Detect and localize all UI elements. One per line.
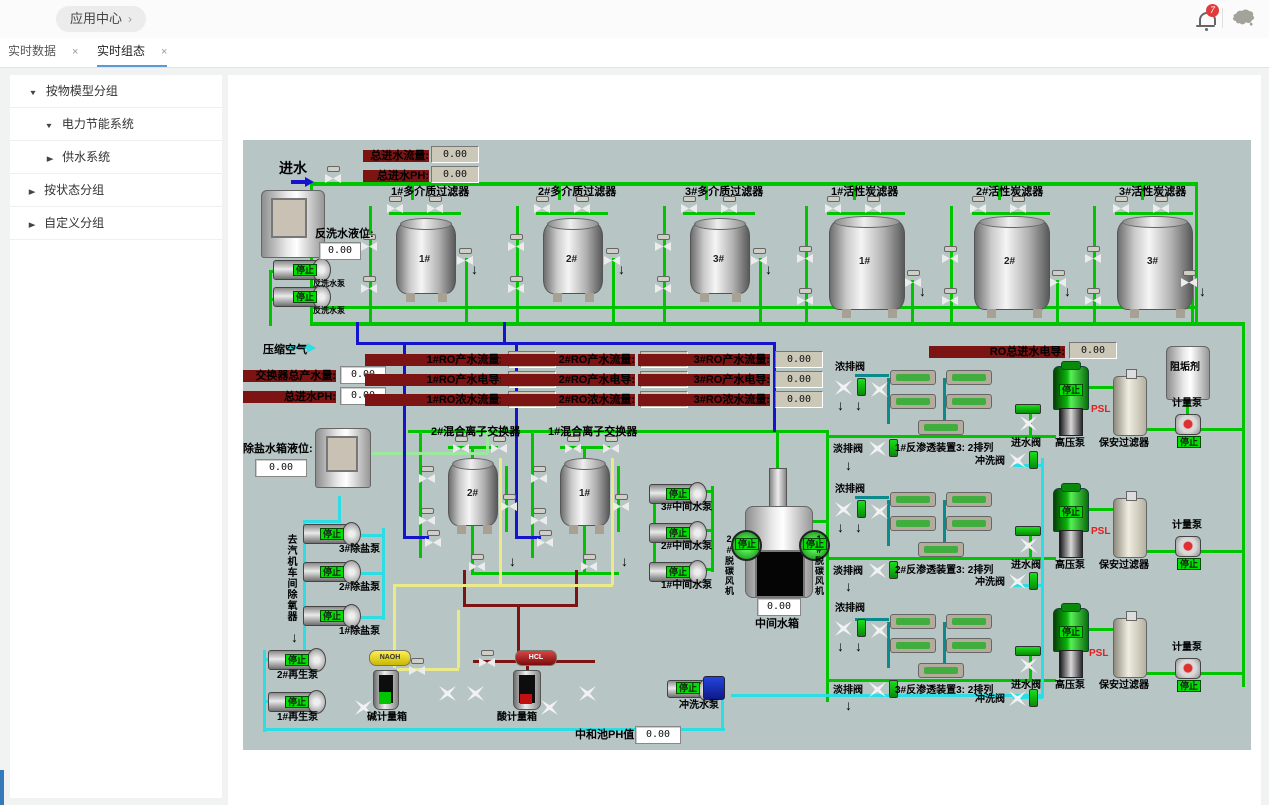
notification-bell-button[interactable]: 7 (1196, 8, 1218, 30)
status-stop-badge[interactable]: 停止 (666, 527, 690, 539)
flush-pump-label: 冲洗水泵 (679, 700, 719, 712)
breadcrumb[interactable]: 应用中心› (56, 6, 146, 32)
flush-pump-head (703, 676, 725, 700)
valve-indicator (857, 619, 866, 637)
pipe-segment (711, 486, 714, 572)
valve-icon[interactable] (865, 196, 881, 214)
valve-icon[interactable] (501, 494, 517, 512)
inlet-arrow-icon (305, 177, 314, 187)
air-arrow-icon (307, 343, 316, 353)
conc-valve-label: 浓排阀 (835, 362, 865, 374)
pipe-segment (465, 258, 468, 324)
pipe-segment (503, 322, 506, 345)
total-ph-value[interactable]: 0.00 (431, 166, 479, 183)
status-stop-badge[interactable]: 停止 (666, 566, 690, 578)
valve-icon[interactable] (1113, 196, 1129, 214)
pipe-segment (1013, 464, 1043, 467)
valve-icon[interactable] (469, 554, 485, 572)
hp-pump-label: 高压泵 (1055, 680, 1085, 692)
pipe-segment (471, 572, 619, 575)
drain-valve-icon[interactable] (871, 623, 888, 638)
status-stop-badge[interactable]: 停止 (320, 566, 344, 578)
pipe-segment (1195, 182, 1198, 324)
conc-valve-label: 浓排阀 (835, 603, 865, 615)
pipe-segment (1041, 458, 1044, 698)
ro-membrane (890, 492, 936, 507)
valve-icon[interactable] (574, 196, 590, 214)
naoh-label: NAOH (380, 654, 401, 661)
valve-icon[interactable] (603, 436, 619, 454)
filter-label: 3#多介质过滤器 (685, 186, 763, 198)
alkali-level (379, 692, 391, 704)
valve-icon[interactable] (531, 466, 547, 484)
chem-valve-icon[interactable] (541, 700, 558, 715)
exchanger-label: 1#混合离子交换器 (548, 426, 637, 438)
flow-down-arrow-icon: ↓ (855, 520, 862, 534)
ro-membrane (918, 663, 964, 678)
pipe-segment (310, 322, 1245, 326)
fresh-valve-label: 淡排阀 (833, 444, 863, 456)
total-flow-value[interactable]: 0.00 (431, 146, 479, 163)
valve-icon[interactable] (721, 196, 737, 214)
valve-icon[interactable] (419, 466, 435, 484)
pipe-segment (1242, 322, 1245, 687)
scada-canvas: 1# 2# 3# 1# 2# 3# 2# 1# 阻垢剂 (243, 140, 1251, 750)
inlet-ph2-label: 总进水PH: (243, 391, 336, 403)
pipe-segment (393, 584, 613, 587)
compressed-air-label: 压缩空气 (263, 344, 307, 356)
mid-pump-label: 2#中间水泵 (661, 541, 712, 553)
flow-down-arrow-icon: ↓ (509, 554, 516, 568)
status-stop-badge[interactable]: 停止 (666, 488, 690, 500)
tank-window (326, 436, 358, 472)
tank-number: 1# (579, 488, 590, 499)
mid-tank-screen (755, 550, 805, 598)
flow-down-arrow-icon: ↓ (837, 520, 844, 534)
notification-badge: 7 (1206, 4, 1219, 17)
status-stop-badge[interactable]: 停止 (1177, 680, 1201, 692)
pipe-segment (1013, 584, 1043, 587)
tab-label: 实时组态 (97, 44, 145, 58)
scroll-indicator (0, 770, 4, 805)
ro3-cond-value[interactable]: 0.00 (775, 371, 823, 388)
valve-indicator (857, 378, 866, 396)
pipe-segment (759, 258, 762, 324)
pipe-segment (303, 520, 341, 523)
flow-down-arrow-icon: ↓ (1199, 284, 1206, 298)
to-deaerator-label: 去汽机车间除氧器 (285, 534, 296, 622)
ro-membrane (946, 370, 992, 385)
ro-membrane (890, 614, 936, 629)
tab-label: 实时数据 (8, 44, 56, 58)
flow-down-arrow-icon: ↓ (845, 458, 852, 472)
ro1-flow-label: 1#RO产水流量: (365, 354, 503, 366)
status-stop-badge[interactable]: 停止 (320, 528, 344, 540)
inlet-label: 进水 (279, 162, 307, 174)
backwash-level-label: 反洗水液位: (315, 228, 374, 240)
valve-icon[interactable] (825, 196, 841, 214)
status-stop-badge[interactable]: 停止 (803, 538, 827, 550)
flow-down-arrow-icon: ↓ (919, 284, 926, 298)
flow-down-arrow-icon: ↓ (837, 639, 844, 653)
valve-icon[interactable] (419, 508, 435, 526)
tree-item-label: 按状态分组 (44, 183, 104, 197)
pipe-segment (457, 610, 460, 668)
metering-pump[interactable] (1175, 414, 1201, 435)
breadcrumb-label: 应用中心 (70, 11, 122, 26)
valve-icon[interactable] (1010, 196, 1026, 214)
fan-label: 2#脱碳风机 (723, 534, 734, 596)
main-panel: 1# 2# 3# 1# 2# 3# 2# 1# 阻垢剂 (228, 75, 1261, 805)
filter-label: 1#活性炭滤器 (831, 186, 898, 198)
ro3-conc-value[interactable]: 0.00 (775, 391, 823, 408)
tree-expand-icon[interactable]: ▶ (47, 145, 54, 174)
pipe-segment (291, 180, 305, 184)
guard-filter (1113, 498, 1147, 558)
valve-icon[interactable] (531, 508, 547, 526)
acid-level (520, 694, 532, 704)
total-flow-label: 总进水流量: (363, 150, 429, 162)
tree-expand-icon[interactable]: ▼ (29, 79, 38, 108)
ro2-conc-label: 2#RO浓水流量: (501, 394, 635, 406)
chem-valve-icon[interactable] (579, 686, 596, 701)
tank-number: 3# (1147, 256, 1158, 267)
status-stop-badge[interactable]: 停止 (320, 610, 344, 622)
guard-filter-label: 保安过滤器 (1099, 560, 1149, 572)
pipe-segment (310, 306, 1198, 309)
status-stop-badge[interactable]: 停止 (1059, 626, 1083, 638)
psl-alarm-label: PSL (1091, 404, 1110, 416)
ro-membrane (946, 638, 992, 653)
status-stop-badge[interactable]: 停止 (1177, 436, 1201, 448)
status-stop-badge[interactable]: 停止 (293, 264, 317, 276)
meter-pump-label: 计量泵 (1172, 642, 1202, 654)
tank-number: 3# (713, 254, 724, 265)
psl-alarm-label: PSL (1091, 526, 1110, 538)
valve-icon[interactable] (613, 494, 629, 512)
pump-base (1059, 408, 1083, 436)
valve-icon[interactable] (534, 196, 550, 214)
valve-icon[interactable] (508, 276, 524, 294)
ro1-cond-label: 1#RO产水电导: (365, 374, 503, 386)
valve-icon[interactable] (387, 196, 403, 214)
guard-filter-label: 保安过滤器 (1099, 680, 1149, 692)
pipe-segment (611, 458, 614, 585)
drain-valve-icon[interactable] (871, 504, 888, 519)
pipe-segment (855, 496, 889, 499)
flow-down-arrow-icon: ↓ (471, 262, 478, 276)
flow-down-arrow-icon: ↓ (291, 630, 298, 644)
pipe-segment (575, 570, 578, 606)
pipe-segment (855, 374, 889, 377)
valve-icon[interactable] (1181, 270, 1197, 288)
hcl-tank: HCL (515, 650, 557, 666)
tab-close-icon[interactable]: × (161, 46, 167, 58)
tank-number: 2# (566, 254, 577, 265)
sidebar-item-custom-group[interactable]: ▶自定义分组 (10, 207, 222, 240)
meter-pump-label: 计量泵 (1172, 520, 1202, 532)
valve-icon[interactable] (681, 196, 697, 214)
valve-icon[interactable] (491, 436, 507, 454)
tank-number: 1# (859, 256, 870, 267)
filter-label: 2#活性炭滤器 (976, 186, 1043, 198)
valve-icon[interactable] (655, 276, 671, 294)
tree-expand-icon[interactable]: ▶ (29, 211, 36, 240)
pump-base (1059, 530, 1083, 558)
guard-filter-label: 保安过滤器 (1099, 438, 1149, 450)
flow-down-arrow-icon: ↓ (845, 698, 852, 712)
pipe-segment (403, 342, 406, 539)
valve-icon[interactable] (325, 166, 341, 184)
ro3-flow-label: 3#RO产水流量: (638, 354, 770, 366)
drain-valve-icon[interactable] (835, 621, 852, 636)
filter-label: 2#多介质过滤器 (538, 186, 616, 198)
tree-item-label: 自定义分组 (44, 216, 104, 230)
fresh-valve-label: 淡排阀 (833, 685, 863, 697)
status-stop-badge[interactable]: 停止 (293, 291, 317, 303)
valve-indicator (1029, 572, 1038, 590)
pump-base (1059, 650, 1083, 678)
inlet-valve-label: 进水阀 (1011, 438, 1041, 450)
fresh-drain-valve-icon[interactable] (869, 563, 886, 578)
acid-tank-label: 酸计量箱 (497, 712, 537, 724)
psl-alarm-label: PSL (1089, 648, 1108, 660)
guard-filter (1113, 376, 1147, 436)
flow-down-arrow-icon: ↓ (855, 398, 862, 412)
pipe-segment (382, 528, 385, 620)
ro-unit-label: 1#反渗透装置3: 2排列 (895, 443, 993, 455)
status-stop-badge[interactable]: 停止 (735, 538, 759, 550)
valve-icon[interactable] (409, 658, 425, 676)
desal-level-value[interactable]: 0.00 (255, 459, 307, 477)
chevron-right-icon: › (128, 12, 132, 26)
status-stop-badge[interactable]: 停止 (1059, 384, 1083, 396)
valve-icon[interactable] (453, 436, 469, 454)
flow-down-arrow-icon: ↓ (855, 639, 862, 653)
inlet-valve-indicator (1015, 404, 1041, 414)
valve-indicator (857, 500, 866, 518)
top-bar: 应用中心› 7 (0, 0, 1269, 39)
pipe-segment (776, 430, 779, 472)
valve-icon[interactable] (655, 234, 671, 252)
tank-number: 2# (467, 488, 478, 499)
rinse-valve-label: 冲洗阀 (975, 577, 1005, 589)
backwash-pump-label: 反洗水泵 (313, 278, 345, 290)
valve-icon[interactable] (361, 276, 377, 294)
pipe-segment (499, 458, 502, 585)
valve-indicator (1029, 451, 1038, 469)
tree-item-label: 按物模型分组 (46, 84, 118, 98)
pipe-segment (263, 650, 266, 732)
valve-icon[interactable] (537, 530, 553, 548)
valve-icon[interactable] (508, 234, 524, 252)
ro-total-cond-label: RO总进水电导: (929, 346, 1065, 358)
neutral-ph-label: 中和池PH值: (575, 729, 638, 741)
flow-down-arrow-icon: ↓ (618, 262, 625, 276)
regen-pump-label: 1#再生泵 (277, 712, 318, 724)
metering-pump[interactable] (1175, 536, 1201, 557)
conc-valve-label: 浓排阀 (835, 484, 865, 496)
backwash-pump-label: 反洗水泵 (313, 305, 345, 317)
drain-valve-icon[interactable] (835, 380, 852, 395)
exchanger-label: 2#混合离子交换器 (431, 426, 520, 438)
ro-membrane (890, 370, 936, 385)
status-stop-badge[interactable]: 停止 (676, 682, 700, 694)
ro-membrane (890, 394, 936, 409)
rinse-valve-label: 冲洗阀 (975, 456, 1005, 468)
inlet-valve-indicator (1015, 526, 1041, 536)
mid-tank-level-value[interactable]: 0.00 (757, 598, 801, 616)
sidebar-tree: ▼按物模型分组 ▼电力节能系统 ▶供水系统 ▶按状态分组 ▶自定义分组 (10, 75, 222, 798)
drain-valve-icon[interactable] (835, 502, 852, 517)
tree-expand-icon[interactable]: ▶ (29, 178, 36, 207)
ro1-conc-label: 1#RO浓水流量: (365, 394, 503, 406)
tree-item-label: 电力节能系统 (62, 117, 134, 131)
pipe-segment (463, 604, 578, 607)
rinse-valve-label: 冲洗阀 (975, 694, 1005, 706)
tab-bar: 实时数据× 实时组态× (0, 38, 1269, 68)
pipe-segment (1087, 386, 1115, 389)
hp-pump-label: 高压泵 (1055, 438, 1085, 450)
ro2-cond-label: 2#RO产水电导: (501, 374, 635, 386)
mid-tank-label: 中间水箱 (755, 618, 799, 630)
fresh-drain-valve-icon[interactable] (869, 441, 886, 456)
backwash-level-value[interactable]: 0.00 (319, 242, 361, 260)
valve-icon[interactable] (797, 246, 813, 264)
scale-inhibitor-label: 阻垢剂 (1170, 362, 1200, 374)
ro2-flow-label: 2#RO产水流量: (501, 354, 635, 366)
ro-membrane (890, 638, 936, 653)
ro3-flow-value[interactable]: 0.00 (775, 351, 823, 368)
pipe-segment (826, 430, 829, 702)
filter-label: 3#活性炭滤器 (1119, 186, 1186, 198)
ro-membrane (918, 420, 964, 435)
flow-down-arrow-icon: ↓ (837, 398, 844, 412)
neutral-ph-value[interactable]: 0.00 (635, 726, 681, 744)
valve-icon[interactable] (1085, 246, 1101, 264)
ro-membrane (946, 516, 992, 531)
total-ph-label: 总进水PH: (363, 170, 429, 182)
valve-icon[interactable] (942, 246, 958, 264)
sidebar-item-model-group[interactable]: ▼按物模型分组 (10, 75, 222, 108)
guard-filter (1113, 618, 1147, 678)
tab-realtime-data[interactable]: 实时数据× (8, 38, 78, 65)
drain-valve-icon[interactable] (871, 382, 888, 397)
valve-icon[interactable] (942, 288, 958, 306)
pipe-segment (368, 452, 488, 455)
mid-pump-label: 3#中间水泵 (661, 502, 712, 514)
inlet-valve-label: 进水阀 (1011, 560, 1041, 572)
ro-unit-label: 2#反渗透装置3: 2排列 (895, 565, 993, 577)
pipe-segment (338, 496, 341, 522)
hcl-label: HCL (529, 654, 543, 661)
desal-level-label: 除盐水箱液位: (243, 443, 313, 455)
tree-item-label: 供水系统 (62, 150, 110, 164)
pipe-segment (612, 258, 615, 324)
status-stop-badge[interactable]: 停止 (285, 696, 309, 708)
exchanger-total-label: 交换器总产水量: (243, 370, 336, 382)
valve-icon[interactable] (581, 554, 597, 572)
valve-icon[interactable] (1085, 288, 1101, 306)
valve-icon[interactable] (425, 530, 441, 548)
pipe-segment (1087, 628, 1115, 631)
status-stop-badge[interactable]: 停止 (1177, 558, 1201, 570)
tree-expand-icon[interactable]: ▼ (45, 112, 54, 141)
desal-pump-label: 1#除盐泵 (339, 626, 380, 638)
inlet-valve-indicator (1015, 646, 1041, 656)
valve-icon[interactable] (1153, 196, 1169, 214)
desal-pump-label: 2#除盐泵 (339, 582, 380, 594)
valve-icon[interactable] (797, 288, 813, 306)
valve-icon[interactable] (479, 650, 495, 668)
pipe-segment (1087, 508, 1115, 511)
acid-metering-tank (513, 670, 541, 710)
pipe-segment (463, 570, 466, 606)
chem-valve-icon[interactable] (439, 686, 456, 701)
meter-pump-label: 计量泵 (1172, 398, 1202, 410)
alkali-metering-tank (373, 670, 399, 710)
pipe-segment (356, 342, 776, 345)
regen-pump-label: 2#再生泵 (277, 670, 318, 682)
flow-down-arrow-icon: ↓ (1064, 284, 1071, 298)
flow-down-arrow-icon: ↓ (621, 554, 628, 568)
valve-icon[interactable] (970, 196, 986, 214)
ro3-conc-label: 3#RO浓水流量: (638, 394, 770, 406)
naoh-tank: NAOH (369, 650, 411, 666)
china-map-icon[interactable] (1230, 8, 1256, 33)
flow-down-arrow-icon: ↓ (845, 579, 852, 593)
sidebar-item-water-supply[interactable]: ▶供水系统 (10, 141, 222, 174)
fresh-valve-label: 淡排阀 (833, 566, 863, 578)
ro-membrane (890, 516, 936, 531)
ro-membrane (918, 542, 964, 557)
valve-icon[interactable] (427, 196, 443, 214)
tab-realtime-hmi[interactable]: 实时组态× (97, 38, 167, 67)
tab-close-icon[interactable]: × (72, 46, 78, 58)
hp-pump-label: 高压泵 (1055, 560, 1085, 572)
header-divider (1222, 8, 1223, 28)
flow-down-arrow-icon: ↓ (765, 262, 772, 276)
sidebar-item-power-saving[interactable]: ▼电力节能系统 (10, 108, 222, 141)
alkali-tank-label: 碱计量箱 (367, 712, 407, 724)
status-stop-badge[interactable]: 停止 (1059, 506, 1083, 518)
metering-pump[interactable] (1175, 658, 1201, 679)
ro3-cond-label: 3#RO产水电导: (638, 374, 770, 386)
pipe-segment (397, 668, 459, 671)
ro-membrane (946, 492, 992, 507)
tank-number: 1# (419, 254, 430, 265)
ro-membrane (946, 394, 992, 409)
tank-number: 2# (1004, 256, 1015, 267)
sidebar-item-status-group[interactable]: ▶按状态分组 (10, 174, 222, 207)
valve-icon[interactable] (565, 436, 581, 454)
filter-label: 1#多介质过滤器 (391, 186, 469, 198)
tank-window (271, 198, 307, 238)
ro-membrane (946, 614, 992, 629)
status-stop-badge[interactable]: 停止 (285, 654, 309, 666)
chem-valve-icon[interactable] (467, 686, 484, 701)
pipe-segment (721, 698, 724, 730)
desal-pump-label: 3#除盐泵 (339, 544, 380, 556)
mid-pump-label: 1#中间水泵 (661, 580, 712, 592)
inlet-valve-label: 进水阀 (1011, 680, 1041, 692)
ro-total-cond-value[interactable]: 0.00 (1069, 342, 1117, 359)
